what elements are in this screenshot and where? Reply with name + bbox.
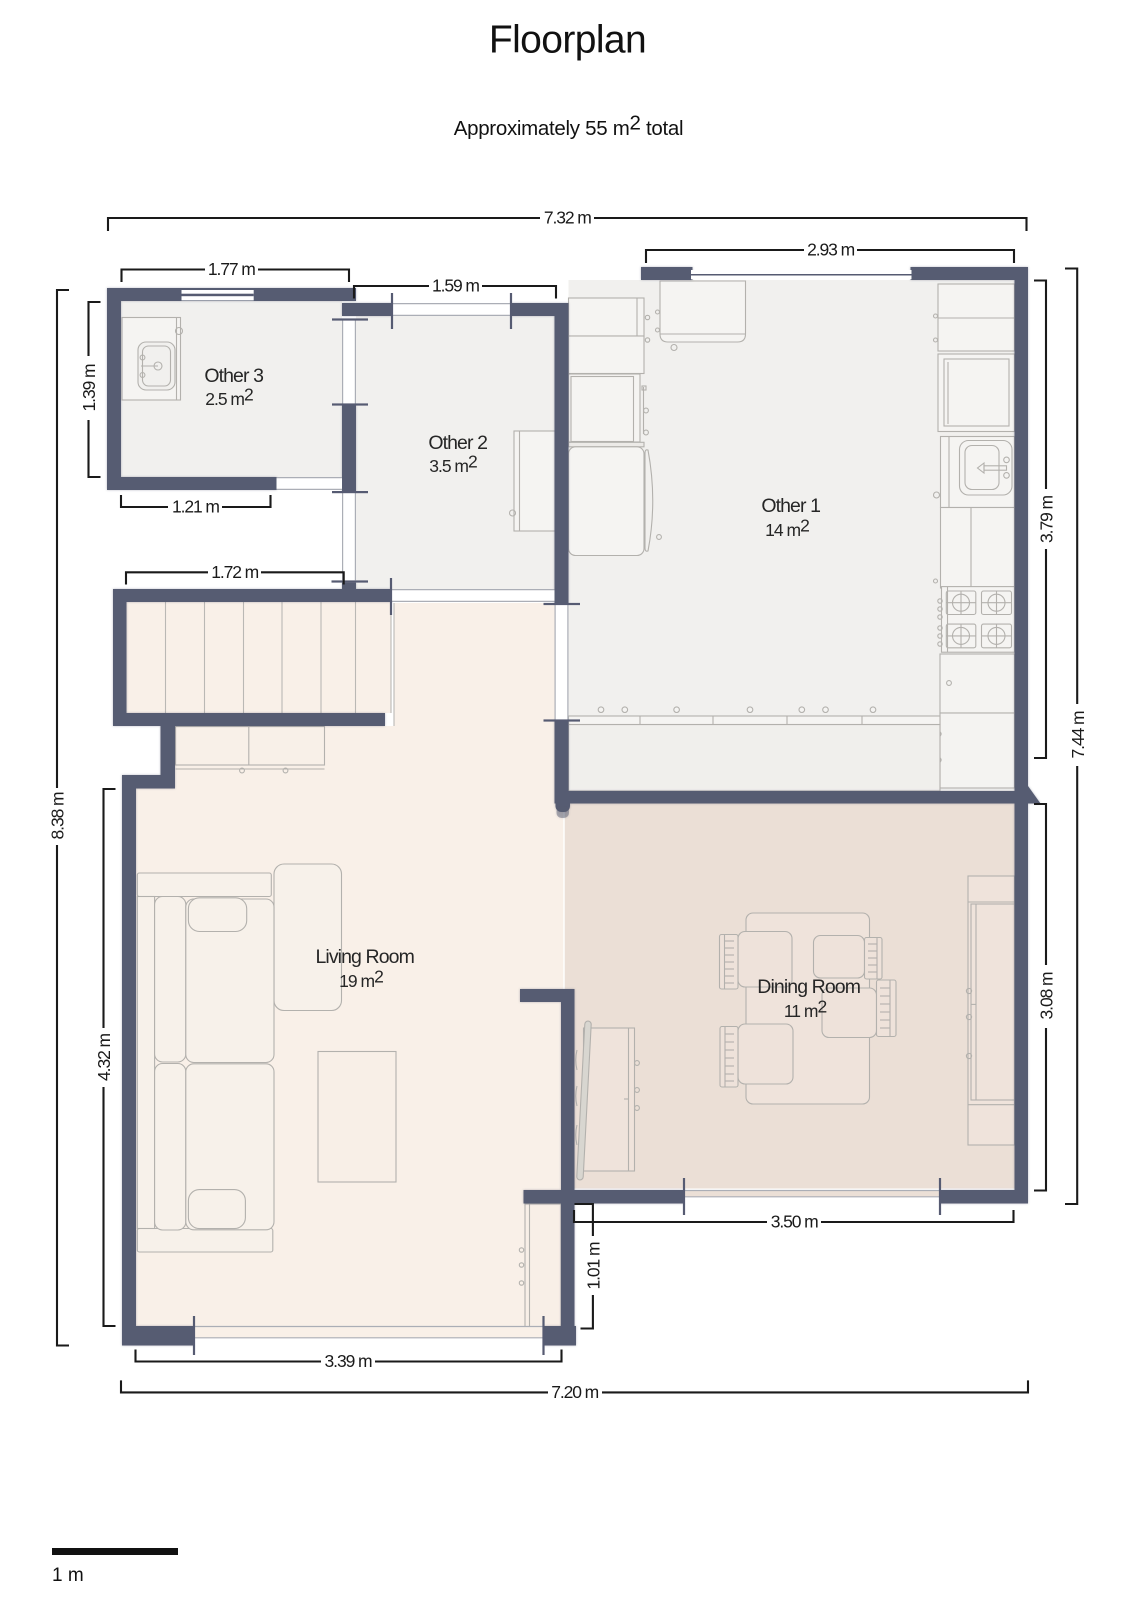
svg-text:1 m: 1 m <box>52 1565 84 1586</box>
svg-text:Living Room: Living Room <box>315 946 413 968</box>
svg-text:Floorplan: Floorplan <box>489 19 646 62</box>
svg-text:1.39 m: 1.39 m <box>79 364 99 411</box>
svg-text:8.38 m: 8.38 m <box>48 792 68 839</box>
svg-text:Other 2: Other 2 <box>428 432 487 454</box>
svg-text:7.32 m: 7.32 m <box>544 208 591 228</box>
svg-text:3.50 m: 3.50 m <box>771 1211 818 1231</box>
svg-text:Other 3: Other 3 <box>204 365 263 387</box>
svg-text:7.20 m: 7.20 m <box>551 1382 598 1402</box>
svg-text:1.77 m: 1.77 m <box>208 259 255 279</box>
svg-text:Other 1: Other 1 <box>761 495 820 517</box>
svg-text:4.32 m: 4.32 m <box>94 1034 114 1081</box>
svg-text:7.44 m: 7.44 m <box>1068 711 1088 758</box>
svg-text:1.01 m: 1.01 m <box>584 1242 604 1289</box>
svg-text:3.08 m: 3.08 m <box>1037 972 1057 1019</box>
svg-text:3.39 m: 3.39 m <box>325 1351 372 1371</box>
svg-text:3.79 m: 3.79 m <box>1037 496 1057 543</box>
svg-text:1.59 m: 1.59 m <box>432 276 479 296</box>
svg-text:1.72 m: 1.72 m <box>211 562 258 582</box>
svg-text:Dining Room: Dining Room <box>757 976 860 998</box>
svg-text:1.21 m: 1.21 m <box>172 497 219 517</box>
svg-text:2.93 m: 2.93 m <box>807 240 854 260</box>
